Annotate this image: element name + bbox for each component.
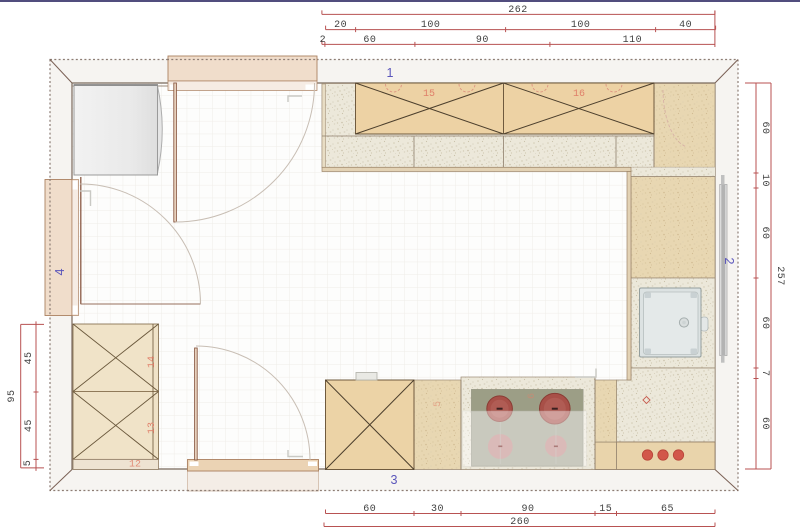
svg-text:15: 15 <box>599 504 612 515</box>
svg-text:5: 5 <box>23 460 34 467</box>
svg-text:95: 95 <box>7 389 18 402</box>
svg-text:30: 30 <box>431 504 444 515</box>
svg-text:2: 2 <box>722 258 736 265</box>
svg-text:4: 4 <box>53 268 67 275</box>
svg-text:260: 260 <box>510 517 530 528</box>
svg-text:110: 110 <box>623 35 643 46</box>
svg-text:14: 14 <box>147 356 158 368</box>
svg-text:60: 60 <box>363 35 376 46</box>
svg-text:12: 12 <box>129 460 141 471</box>
svg-text:1: 1 <box>387 66 394 80</box>
svg-text:40: 40 <box>679 20 692 31</box>
svg-text:13: 13 <box>147 422 158 434</box>
svg-text:60: 60 <box>759 316 770 329</box>
svg-text:15: 15 <box>423 89 435 100</box>
svg-text:6: 6 <box>527 393 538 399</box>
svg-text:60: 60 <box>759 121 770 134</box>
svg-text:7: 7 <box>759 370 770 377</box>
svg-text:60: 60 <box>759 226 770 239</box>
svg-text:45: 45 <box>24 419 35 432</box>
svg-text:90: 90 <box>521 504 534 515</box>
svg-text:257: 257 <box>774 266 785 286</box>
svg-text:100: 100 <box>421 20 441 31</box>
svg-text:65: 65 <box>661 504 674 515</box>
svg-text:10: 10 <box>759 174 770 187</box>
svg-text:2: 2 <box>320 35 327 46</box>
svg-text:16: 16 <box>573 89 585 100</box>
svg-text:3: 3 <box>391 473 398 487</box>
svg-text:45: 45 <box>24 351 35 364</box>
svg-text:20: 20 <box>334 20 347 31</box>
svg-text:262: 262 <box>508 5 528 16</box>
svg-text:60: 60 <box>363 504 376 515</box>
svg-text:60: 60 <box>759 417 770 430</box>
svg-text:90: 90 <box>476 35 489 46</box>
svg-text:5: 5 <box>433 401 444 407</box>
svg-text:100: 100 <box>571 20 591 31</box>
